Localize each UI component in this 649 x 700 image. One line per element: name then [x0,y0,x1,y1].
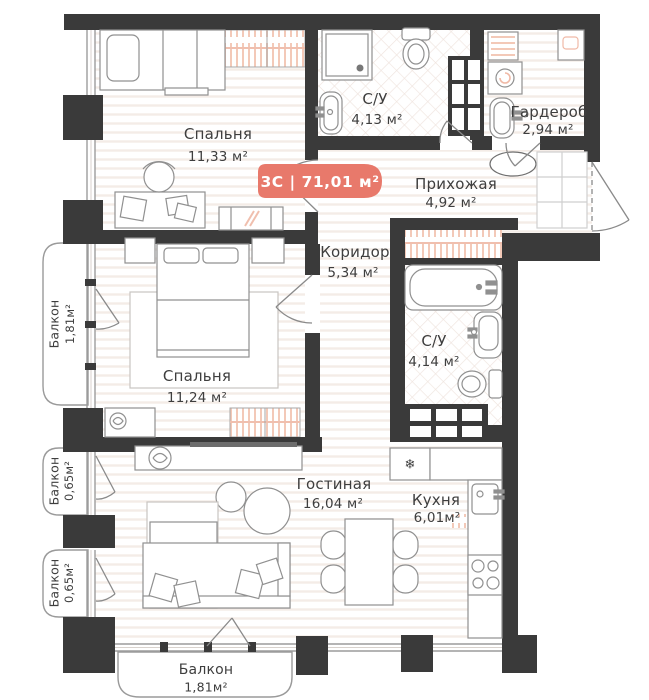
room-label-balcony-bottom-area: 1,81м² [184,680,227,695]
wardrobe-hatch-bedroom-1 [222,30,305,67]
wall-hallway-bottom [502,233,600,261]
shelf-grid-bathroom1 [448,56,484,136]
kitchen-counter-top [430,448,502,480]
room-label-bathroom1-area: 4,13 м² [351,112,402,128]
window-living-bottom [115,642,296,652]
room-label-hallway-name: Прихожая [415,175,497,193]
window-kitchen-bottom [433,644,502,651]
wall-top [64,14,600,30]
floor-plan-page: ❄ [0,0,649,700]
room-label-kitchen-name: Кухня [412,491,460,509]
wall-pier-bottom-1 [296,636,328,675]
room-label-wardrobe-name: Гардероб [510,103,587,121]
bathtub [405,265,502,310]
dining-chair [321,565,346,593]
wall-corridor-left-a [305,244,320,275]
desk [115,192,205,228]
wall-pier-left-1 [63,95,103,140]
room-label-kitchen-area: 6,01м² [414,510,461,526]
side-table-small [216,482,246,512]
wardrobe-hatch-bedroom-2 [230,408,300,437]
wall-bathroom2-bottom-right [488,425,518,442]
room-label-living-area: 16,04 м² [303,496,363,512]
room-label-bedroom2-area: 11,24 м² [167,390,227,406]
dining-chair [393,531,418,559]
wall-corner-bottom-left [63,617,115,673]
room-label-bathroom1-name: С/У [362,90,387,108]
nightstand-left [125,238,155,263]
desk-chair [143,162,175,192]
sink-bathroom1 [316,92,342,134]
room-label-bathroom2-area: 4,14 м² [408,354,459,370]
tv-stand [135,442,302,470]
fridge: ❄ [390,448,430,480]
fridge-snowflake-icon: ❄ [404,458,415,473]
window-living-bottom-2 [328,644,401,651]
wall-pier-living-left [63,515,115,548]
wall-pier-bottom-2 [401,635,433,672]
wardrobe-hatch-closet [405,229,502,258]
wall-bedroom1-right-bottom [305,212,318,244]
room-label-balcony-bottom-name: Балкон [179,662,234,678]
floor-plan: ❄ [0,0,649,700]
area-badge: 3С | 71,01 м² [258,164,382,198]
room-label-balcony-left-name: Балкон [47,300,62,349]
wall-row-b [472,136,492,150]
window-bedroom1-left-1 [87,30,95,95]
room-label-bedroom1-name: Спальня [184,125,252,143]
badge-label: 3С | 71,01 м² [261,173,380,192]
room-label-balcony-small2-area: 0,65м² [62,563,76,603]
wall-bathroom2-left [390,218,405,442]
shelf-grid-bathroom2 [405,404,488,442]
room-label-wardrobe-area: 2,94 м² [522,122,573,138]
dresser-bedroom1 [219,207,283,230]
shelf-wardrobe [488,32,518,60]
room-label-balcony-left-area: 1,81м² [63,304,77,344]
water-heater [558,30,584,60]
room-label-bedroom2-name: Спальня [163,367,231,385]
side-table-large [244,488,290,534]
room-label-balcony-small2-name: Балкон [47,559,62,608]
room-label-living-name: Гостиная [297,475,372,493]
room-label-bathroom2-name: С/У [421,332,446,350]
toilet-bathroom2 [458,370,502,398]
wall-row-c [540,136,600,150]
dining-chair [393,565,418,593]
window-bedroom2-left [85,244,96,408]
dining-table [345,519,393,605]
room-label-balcony-small1-area: 0,65м² [62,461,76,501]
wall-closet-top [390,218,518,230]
room-label-corridor-name: Коридор [320,243,390,261]
room-label-balcony-small1-name: Балкон [47,457,62,506]
nightstand-right [252,238,284,263]
room-label-hallway-area: 4,92 м² [425,195,476,211]
wall-corridor-left-b [305,333,320,452]
wall-right-lower [502,261,518,673]
wall-row-a [318,136,440,150]
shower [322,30,372,80]
hallway-closet [537,152,587,228]
dining-chair [321,531,346,559]
room-label-corridor-area: 5,34 м² [327,265,378,281]
washing-machine [488,62,522,94]
wall-corner-bottom-right [502,635,537,673]
wall-closet-bottom [405,258,502,265]
dresser-bedroom2 [105,408,155,437]
bed-double [157,244,249,357]
door-entrance [592,162,629,233]
bed-single [100,30,225,95]
room-label-bedroom1-area: 11,33 м² [188,149,248,165]
wall-bedroom1-right-top [305,30,318,160]
stove [468,555,502,595]
window-bedroom1-left-2 [87,140,95,200]
toilet-bathroom1 [402,28,430,69]
